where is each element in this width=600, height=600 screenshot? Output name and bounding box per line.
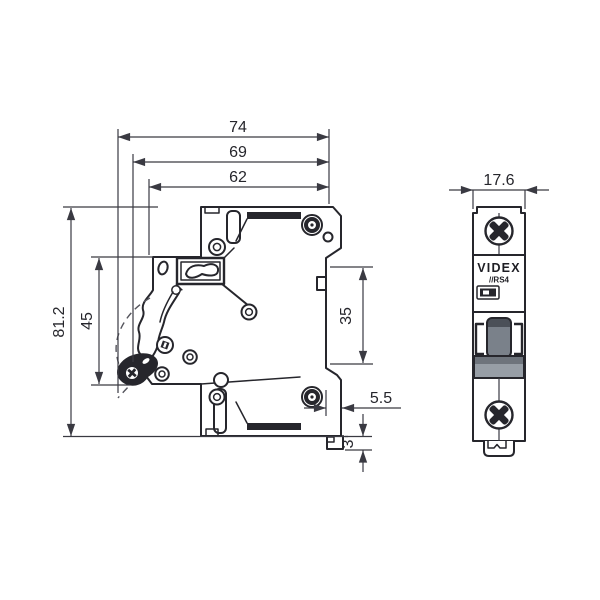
dim-label-69: 69 [229,144,247,161]
technical-drawing-canvas: VIDEX //RS4 [0,0,600,600]
rivet-top-right [302,215,322,235]
dim-label-17-6: 17.6 [483,172,514,189]
dim-label-5-5: 5.5 [370,390,392,407]
rivet-d [155,367,169,381]
oval-hole [157,261,169,276]
dimension-17-6: 17.6 [449,172,549,209]
phillips-screw-bottom [483,399,516,432]
top-dark-band [247,212,301,219]
rivet-e [210,390,225,405]
phillips-screw-top [483,215,516,248]
rivet-bottom-right [302,387,322,407]
dimension-3: 3 [340,414,372,472]
dimension-35: 35 [330,267,373,364]
rivet-b [242,305,257,320]
rivet-a [209,239,225,255]
din-latch [117,353,158,386]
toggle-switch [474,318,524,378]
dim-label-45: 45 [79,312,96,330]
dim-label-3: 3 [340,439,357,448]
toggle-window [177,248,234,284]
front-bottom-clip [484,441,514,456]
breaker-dimension-drawing: VIDEX //RS4 [0,0,600,600]
series-label: //RS4 [489,276,510,285]
brand-label: VIDEX [477,261,521,275]
dimension-74: 74 [118,119,329,393]
bottom-dark-band [247,423,301,430]
boss-circle [214,373,228,387]
front-view: VIDEX //RS4 [473,207,525,456]
dim-label-62: 62 [229,169,247,186]
dim-label-74: 74 [229,119,247,136]
din-hook-tab [317,277,326,290]
rivet-c [183,350,197,364]
dimension-annotations: 74 69 62 81.2 45 [51,119,549,472]
dim-label-35: 35 [338,307,355,325]
status-indicator-window [477,286,499,299]
small-hole [324,233,333,242]
rivet-square-nut [157,337,173,353]
rivets [155,215,332,407]
dim-label-81-2: 81.2 [51,306,68,337]
side-profile-view [116,207,343,449]
